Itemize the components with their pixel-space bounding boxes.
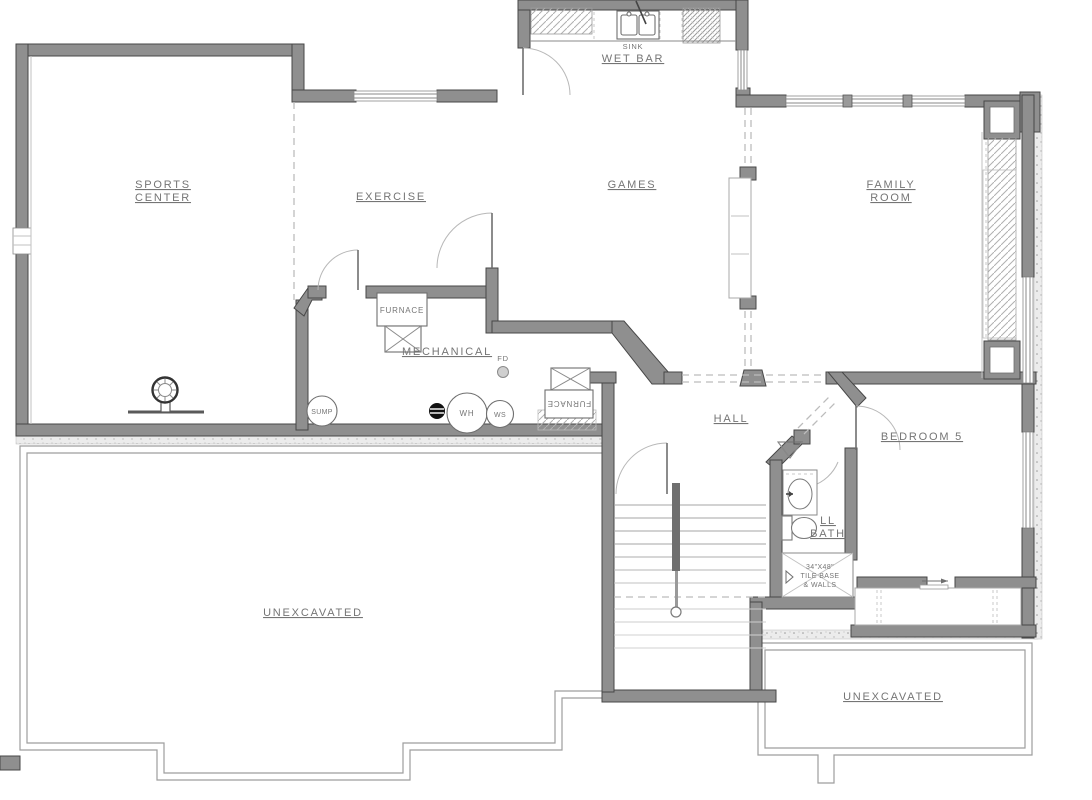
sink-label: SINK bbox=[623, 42, 644, 51]
sports-center-label-line2: CENTER bbox=[135, 192, 191, 204]
floor-drain-fd: FD bbox=[497, 354, 509, 378]
sports-center-label-line1: SPORTS bbox=[135, 179, 191, 191]
unexcavated-left-label: UNEXCAVATED bbox=[263, 607, 363, 619]
shower: 34"X48" TILE BASE & WALLS bbox=[782, 553, 853, 597]
family-room-label-line1: FAMILY bbox=[866, 179, 915, 191]
furnace-1: FURNACE bbox=[377, 293, 427, 352]
floor-plan-drawing: FURNACE FURNACE FD SUMP WH WS bbox=[0, 0, 1092, 800]
windows-layer bbox=[13, 50, 1033, 625]
ll-bath-label-line1: LL bbox=[820, 515, 836, 527]
bath-vanity bbox=[783, 470, 817, 515]
mechanical-label: MECHANICAL bbox=[402, 346, 492, 358]
sump-label: SUMP bbox=[311, 409, 332, 416]
unexcavated-right-foundation bbox=[758, 643, 1032, 783]
ll-bath-label-line2: BATH bbox=[810, 528, 846, 540]
games-label: GAMES bbox=[608, 179, 657, 191]
basketball-hoop bbox=[128, 378, 204, 413]
foundation-bands bbox=[16, 95, 1042, 639]
hall-label: HALL bbox=[714, 413, 749, 425]
ws-label: WS bbox=[494, 412, 506, 419]
water-heater: WH bbox=[447, 393, 487, 433]
floor-drain-black bbox=[429, 403, 445, 419]
staircase bbox=[614, 483, 766, 648]
shower-size-label: 34"X48" bbox=[806, 564, 834, 571]
wet-bar-label: WET BAR bbox=[602, 53, 665, 65]
furnace-2: FURNACE bbox=[538, 368, 596, 430]
shower-tile-label: TILE BASE bbox=[800, 573, 839, 580]
column-shelf-divider bbox=[729, 178, 751, 298]
family-room-label-line2: ROOM bbox=[870, 192, 911, 204]
water-softener: WS bbox=[487, 401, 514, 428]
fd-label: FD bbox=[497, 354, 509, 363]
family-room-builtin bbox=[983, 138, 1016, 340]
floor-plan-page: FURNACE FURNACE FD SUMP WH WS bbox=[0, 0, 1092, 800]
unexcavated-right-label: UNEXCAVATED bbox=[843, 691, 943, 703]
sump-pump: SUMP bbox=[307, 396, 337, 426]
exercise-label: EXERCISE bbox=[356, 191, 426, 203]
wh-label: WH bbox=[460, 409, 475, 418]
furnace-1-label: FURNACE bbox=[380, 306, 424, 315]
bedroom5-label: BEDROOM 5 bbox=[881, 431, 963, 443]
shower-walls-label: & WALLS bbox=[804, 582, 837, 589]
furnace-2-label: FURNACE bbox=[547, 399, 591, 408]
